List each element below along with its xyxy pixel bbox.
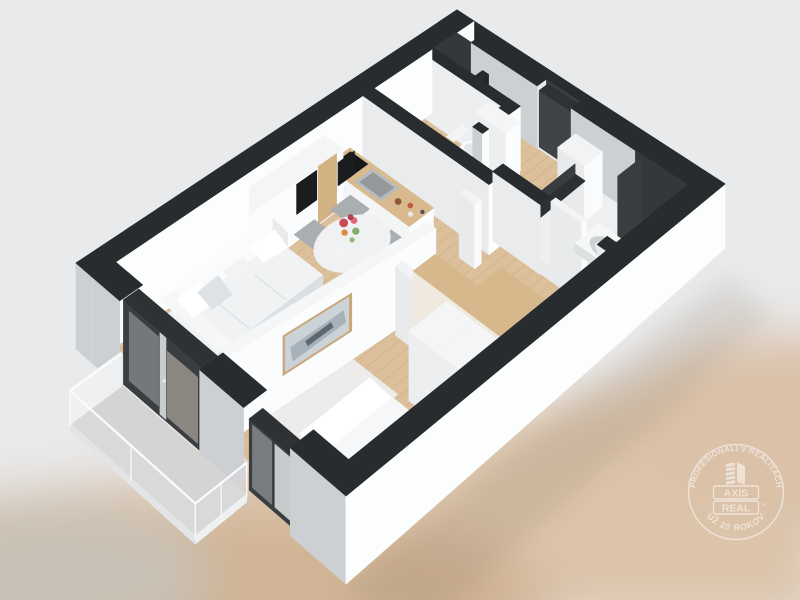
svg-text:AXIS: AXIS <box>724 488 749 500</box>
svg-text:REAL: REAL <box>722 503 751 515</box>
svg-text:TM: TM <box>760 502 766 507</box>
